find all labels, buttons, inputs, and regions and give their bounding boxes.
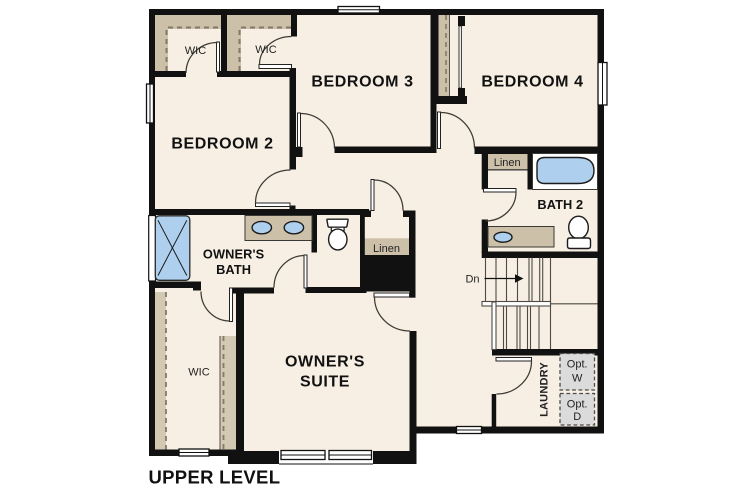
svg-text:BEDROOM 4: BEDROOM 4 [481, 74, 583, 91]
svg-text:Opt.: Opt. [567, 359, 588, 371]
svg-text:Opt.: Opt. [567, 399, 588, 411]
svg-text:WIC: WIC [188, 367, 209, 379]
svg-text:D: D [573, 411, 581, 423]
svg-text:BATH 2: BATH 2 [537, 197, 583, 212]
svg-text:OWNER'S: OWNER'S [285, 354, 365, 371]
svg-text:Linen: Linen [494, 157, 521, 169]
svg-text:OWNER'S: OWNER'S [203, 247, 265, 262]
svg-text:LAUNDRY: LAUNDRY [539, 362, 551, 417]
svg-text:BATH: BATH [216, 262, 251, 277]
svg-text:W: W [572, 373, 583, 385]
svg-text:BEDROOM 2: BEDROOM 2 [171, 135, 273, 152]
svg-text:SUITE: SUITE [300, 374, 350, 391]
svg-text:Dn: Dn [465, 274, 479, 286]
svg-text:WIC: WIC [185, 45, 206, 57]
svg-text:UPPER LEVEL: UPPER LEVEL [149, 467, 281, 488]
svg-text:BEDROOM 3: BEDROOM 3 [311, 74, 413, 91]
svg-text:WIC: WIC [255, 44, 276, 56]
svg-text:Linen: Linen [373, 243, 400, 255]
